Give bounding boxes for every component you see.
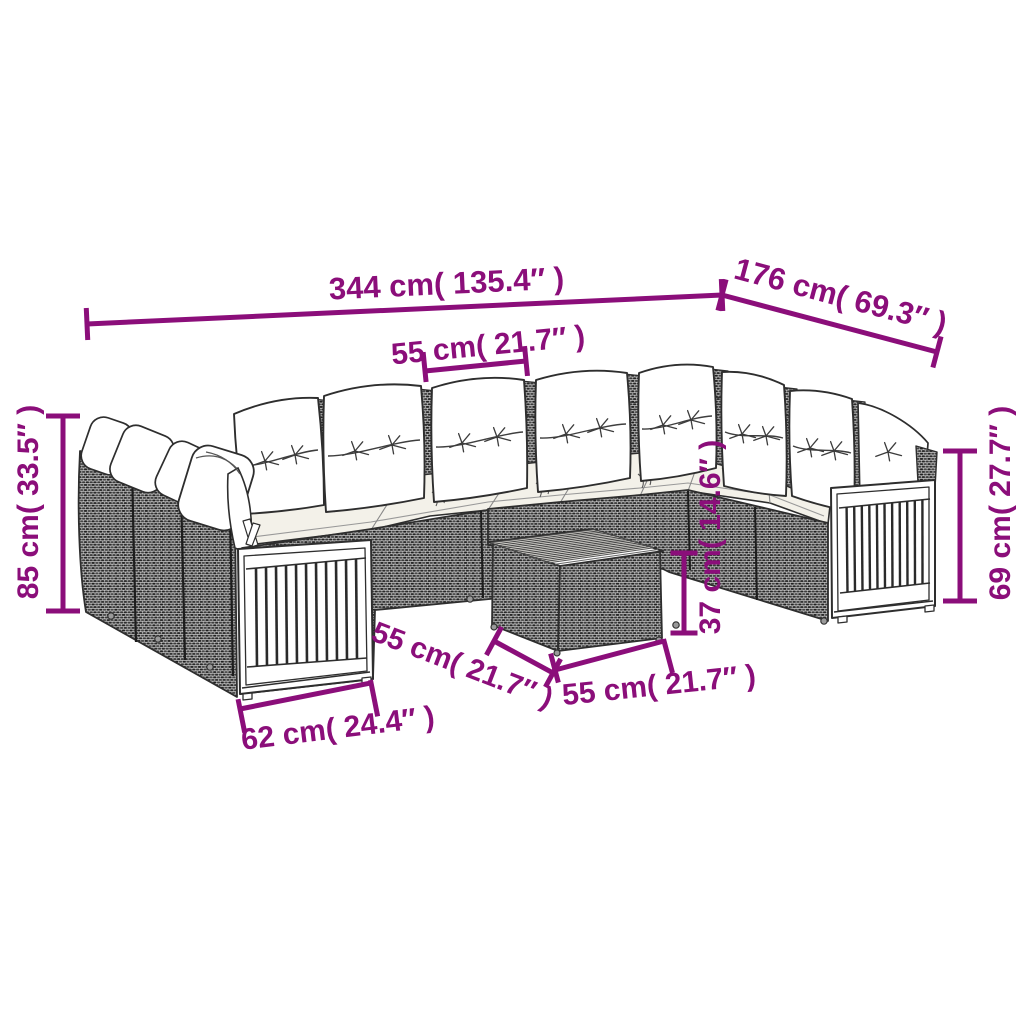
svg-text:69 cm( 27.7″ ): 69 cm( 27.7″ )	[984, 406, 1017, 600]
svg-text:85 cm( 33.5″ ): 85 cm( 33.5″ )	[12, 405, 45, 599]
svg-text:37 cm( 14.6″ ): 37 cm( 14.6″ )	[694, 440, 727, 634]
